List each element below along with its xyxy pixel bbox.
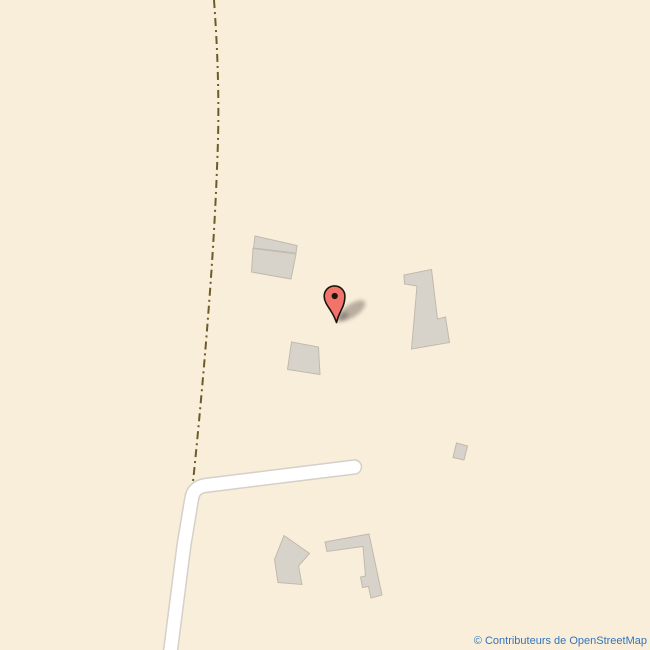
building-chevron-south [275,536,310,585]
map-canvas[interactable]: © Contributeurs de OpenStreetMap [0,0,650,650]
building-tiny-shed [453,443,468,460]
building-small-square [288,342,321,375]
road [170,467,355,650]
attribution: © Contributeurs de OpenStreetMap [474,635,647,648]
building-seven-shaped-south [325,534,382,598]
building-barn-main [252,249,297,280]
track-path [192,0,218,491]
attribution-link[interactable]: © Contributeurs de OpenStreetMap [474,635,647,647]
building-l-shaped-east [404,270,450,350]
map-tiles-layer [0,0,650,650]
